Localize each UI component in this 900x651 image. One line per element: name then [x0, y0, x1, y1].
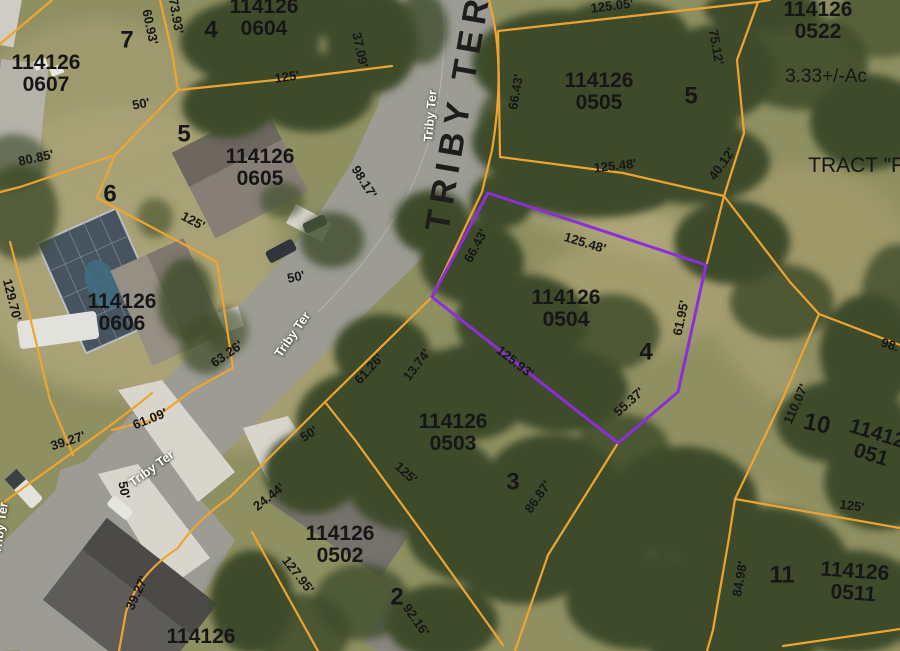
parcel-114126-0522: 114126 0522: [784, 0, 853, 43]
dim-125-48-0504: 125.48': [562, 230, 607, 256]
lot-5: 5: [177, 121, 190, 146]
lot-2: 2: [390, 584, 403, 609]
dim-61-26: 61.26': [352, 351, 386, 387]
dim-110-07: 110.07': [781, 382, 811, 426]
dim-50-b: 50': [286, 268, 306, 285]
lot-6: 6: [103, 181, 116, 206]
dim-125-48-0505: 125.48': [593, 157, 637, 175]
lot-10: 10: [801, 409, 832, 439]
aerial-parcel-map: 114126 0607114126 0604114126 0605114126 …: [0, 0, 900, 651]
acreage-note: 3.33+/-Ac: [785, 67, 867, 87]
dim-86-87: 86.87': [522, 478, 554, 515]
street-name-triby-ter-small-top: Triby Ter: [422, 90, 440, 143]
dim-13-74: 13.74': [401, 347, 434, 384]
dim-66-43-0504: 66.43': [462, 227, 491, 265]
dim-55-37: 55.37': [611, 385, 647, 419]
dim-66-43-0505: 66.43': [506, 73, 526, 110]
dim-98-17: 98.17': [349, 163, 380, 201]
parcel-114126-0604: 114126 0604: [230, 0, 299, 40]
street-name-triby-ter-left-edge: Triby Ter: [0, 501, 11, 554]
dim-125-right: 125': [839, 497, 865, 514]
dim-125-93: 125.93': [494, 343, 536, 380]
lot-5-east: 5: [684, 83, 697, 108]
dim-39-27-b: 39.27': [123, 574, 151, 612]
street-name-triby-ter-small-mid: Triby Ter: [273, 310, 314, 360]
dim-80-85: 80.85': [17, 148, 55, 169]
dim-98-partial: 98.: [879, 336, 900, 355]
dim-24-44: 24.44': [251, 481, 288, 514]
lot-11: 11: [769, 562, 794, 587]
dim-61-95: 61.95': [671, 299, 692, 337]
dim-50-a: 50': [131, 96, 151, 113]
dim-63-26: 63.26': [208, 338, 245, 370]
dim-125-0503: 125': [392, 460, 420, 487]
parcel-114126-0503: 114126 0503: [419, 411, 488, 456]
dim-50-c: 50': [298, 423, 320, 444]
parcel-114126-0607: 114126 0607: [12, 52, 81, 97]
parcel-114126-0502: 114126 0502: [306, 523, 375, 568]
dim-61-09: 61.09': [131, 406, 169, 432]
parcel-114126-0505: 114126 0505: [565, 70, 634, 115]
dim-125-05: 125.05': [590, 0, 634, 15]
dim-127-95: 127.95': [279, 554, 316, 596]
dim-129-70: 129.70': [0, 278, 24, 323]
dim-37-09: 37.09': [350, 31, 371, 69]
dim-60-93: 60.93': [140, 8, 161, 46]
street-name-triby-ter-small-bottom: Triby Ter: [127, 448, 177, 489]
parcel-114126-0605: 114126 0605: [226, 146, 295, 191]
map-labels: 114126 0607114126 0604114126 0605114126 …: [0, 0, 900, 651]
lot-3: 3: [506, 469, 519, 494]
dim-75-12: 75.12': [706, 28, 726, 65]
dim-39-27-a: 39.27': [49, 429, 87, 453]
parcel-114126-0606: 114126 0606: [88, 291, 157, 336]
parcel-114126-bottom: 114126: [167, 626, 236, 648]
dim-125-lot6: 125': [179, 209, 207, 233]
parcel-114126-right-edge: 11412 051: [840, 415, 900, 474]
tract-label: TRACT "F: [808, 155, 900, 177]
dim-125-top: 125': [274, 68, 300, 85]
parcel-114126-0511: 114126 0511: [818, 558, 890, 607]
lot-4: 4: [204, 17, 217, 42]
street-name-triby-ter-main: TRIBY TER: [419, 0, 496, 234]
dim-73-93: 73.93': [166, 0, 186, 35]
lot-4-highlighted: 4: [639, 339, 652, 364]
dim-40-12: 40.12': [706, 145, 738, 182]
dim-50-d: 50': [116, 480, 133, 500]
lot-7: 7: [120, 27, 133, 52]
dim-92-16: 92.16': [400, 601, 432, 638]
dim-84-98: 84.98': [730, 560, 750, 597]
parcel-114126-0504: 114126 0504: [532, 287, 601, 332]
